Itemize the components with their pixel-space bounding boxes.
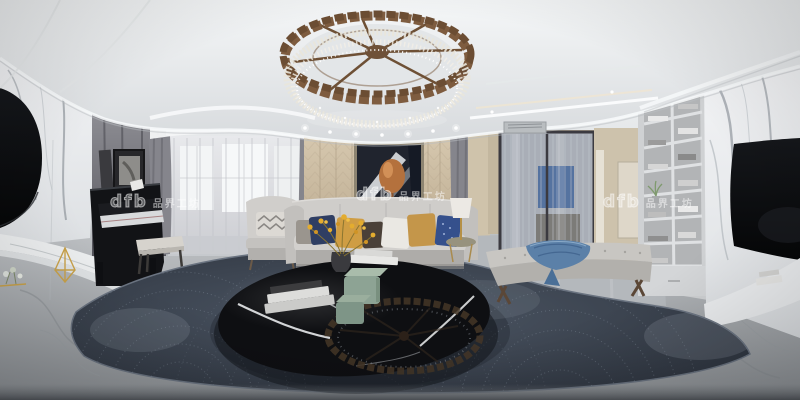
vignette	[0, 0, 800, 400]
panorama-living-room: dfb 品界工坊 dfb 品界工坊 dfb 品界工坊	[0, 0, 800, 400]
rendered-scene	[0, 0, 800, 400]
